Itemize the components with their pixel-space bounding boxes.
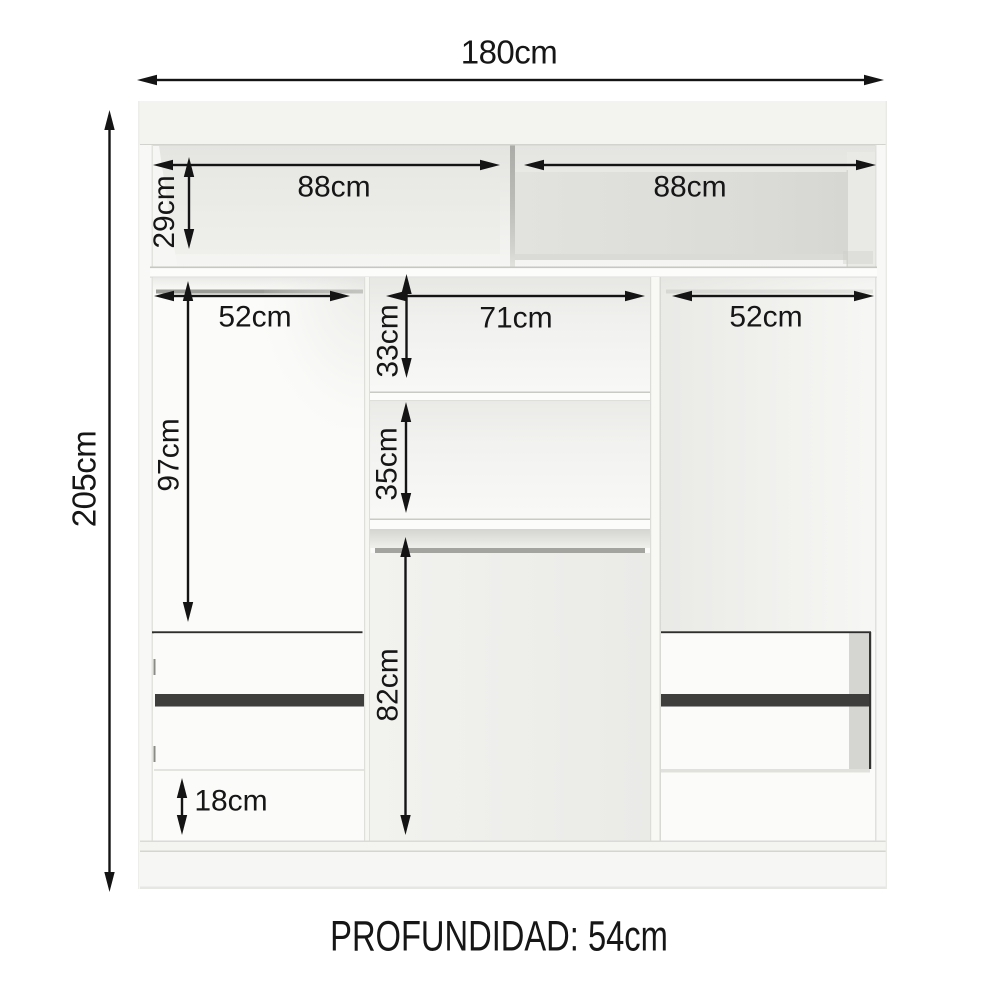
svg-text:71cm: 71cm [479,302,552,335]
svg-text:52cm: 52cm [218,301,291,334]
svg-text:205cm: 205cm [66,431,103,528]
svg-text:82cm: 82cm [372,648,405,721]
svg-text:97cm: 97cm [153,418,186,491]
svg-text:18cm: 18cm [194,785,267,818]
svg-text:180cm: 180cm [461,34,558,71]
svg-text:88cm: 88cm [653,171,726,204]
svg-text:88cm: 88cm [297,171,370,204]
svg-text:33cm: 33cm [372,304,405,377]
svg-text:29cm: 29cm [148,175,181,248]
svg-text:35cm: 35cm [371,427,404,500]
svg-text:52cm: 52cm [729,301,802,334]
svg-text:PROFUNDIDAD: 54cm: PROFUNDIDAD: 54cm [330,912,668,960]
